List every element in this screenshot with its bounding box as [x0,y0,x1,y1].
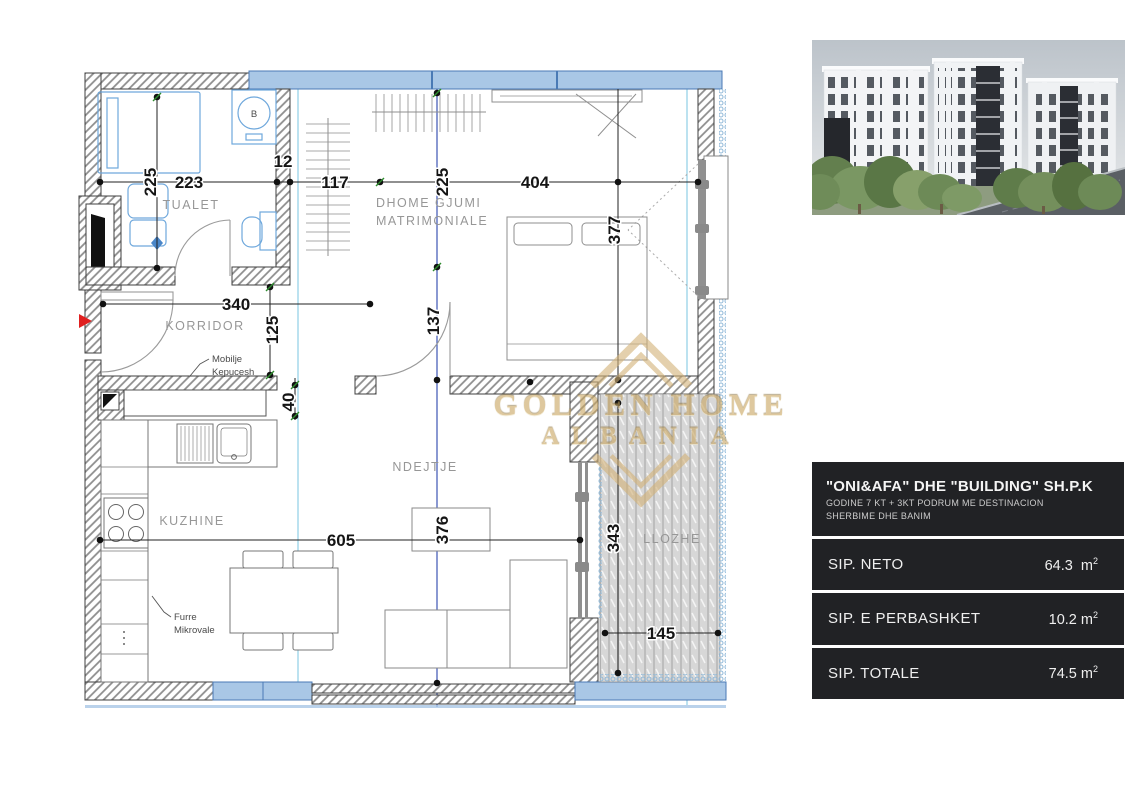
room-label-llozhe: LLOZHE [643,532,701,546]
wall-tualet-right [276,89,290,285]
area-label: SIP. E PERBASHKET [828,610,980,627]
panel-header: "ONI&AFA" DHE "BUILDING" SH.P.K GODINE 7… [812,462,1124,536]
living-furniture [385,508,567,668]
wall-balcony-corner-bottom [570,618,598,682]
floor-plan: B [76,64,736,709]
wall-bottom-thin-2 [312,695,575,704]
closet-hangers-top [376,94,480,132]
pillow-1 [514,223,572,245]
boiler-label: B [251,109,257,120]
developer-subtitle-1: GODINE 7 KT + 3KT PODRUM ME DESTINACION [826,498,1110,508]
wall-bottom-thick [85,682,213,700]
dim-12: 12 [274,152,293,171]
chair [243,551,283,568]
boiler-base [246,134,262,140]
chair [293,633,333,650]
sofa-chaise [510,560,567,668]
note-oven-2: Mikrovale [174,625,215,636]
wall-right-mid [698,295,714,394]
bathtub-panel [107,98,118,168]
area-row-totale: SIP. TOTALE 74.5 m2 [812,648,1124,699]
bedroom-window [628,156,728,299]
toilet-bowl [242,217,262,247]
dim-404: 404 [521,173,550,192]
wall-divider-stub [355,376,376,394]
area-value: 74.5 m2 [1049,664,1098,682]
developer-subtitle-2: SHERBIME DHE BANIM [826,511,1110,521]
wall-top-left [85,73,249,89]
dim-605: 605 [327,531,355,550]
shoe-leader-line [190,359,209,376]
dim-225-bedroom: 225 [433,168,452,196]
shoe-cabinet-wall [98,376,277,420]
room-label-bedroom-2: MATRIMONIALE [376,214,488,228]
kitchen-furniture [101,420,338,682]
wall-balcony-corner-top [570,382,598,462]
dim-377: 377 [605,216,624,244]
shelf-bracket [576,94,636,138]
room-label-tualet: TUALET [163,198,220,212]
room-label-ndejtje: NDEJTJE [392,460,457,474]
area-row-perbashket: SIP. E PERBASHKET 10.2 m2 [812,593,1124,644]
dim-137: 137 [424,307,443,335]
area-label: SIP. TOTALE [828,665,920,682]
dim-125: 125 [263,316,282,344]
chair [293,551,333,568]
room-label-korridor: KORRIDOR [165,319,244,333]
dim-225-tualet: 225 [141,168,160,196]
note-shoe-1: Mobilje [212,354,242,365]
wall-right-top [698,89,714,160]
bed [507,217,647,360]
building-photo [812,40,1125,215]
area-row-neto: SIP. NETO 64.3 m2 [812,539,1124,590]
dim-340: 340 [222,295,250,314]
wall-tualet-bottom-2 [232,267,290,285]
dining-table [230,568,338,633]
area-value: 64.3 m2 [1045,556,1098,574]
dim-223: 223 [175,173,203,192]
developer-title: "ONI&AFA" DHE "BUILDING" SH.P.K [826,478,1110,495]
dim-145: 145 [647,624,675,643]
dim-117: 117 [321,173,348,192]
oven-leader-line [152,596,171,617]
note-oven-1: Furre [174,612,197,623]
dimension-ticks [153,89,441,420]
dim-376: 376 [433,516,452,544]
chair [243,633,283,650]
dim-40: 40 [279,393,298,412]
bathroom-fixtures [98,90,276,250]
room-label-kuzhine: KUZHINE [159,514,224,528]
dim-343: 343 [604,524,623,552]
bathtub [98,92,200,173]
area-label: SIP. NETO [828,556,904,573]
entry-door-arc [101,300,173,372]
wall-tualet-bottom-1 [86,267,175,285]
note-shoe-2: Kepucesh [212,367,254,378]
info-panel: "ONI&AFA" DHE "BUILDING" SH.P.K GODINE 7… [812,462,1124,699]
entry-door-leaf [101,292,173,300]
wall-top-blue [249,71,722,89]
tualet-door-arc [175,220,230,276]
area-value: 10.2 m2 [1049,610,1098,628]
room-label-bedroom-1: DHOME GJUMI [376,196,481,210]
wall-bottom-thin-1 [312,684,575,693]
balcony-bottom-rail [575,682,726,700]
